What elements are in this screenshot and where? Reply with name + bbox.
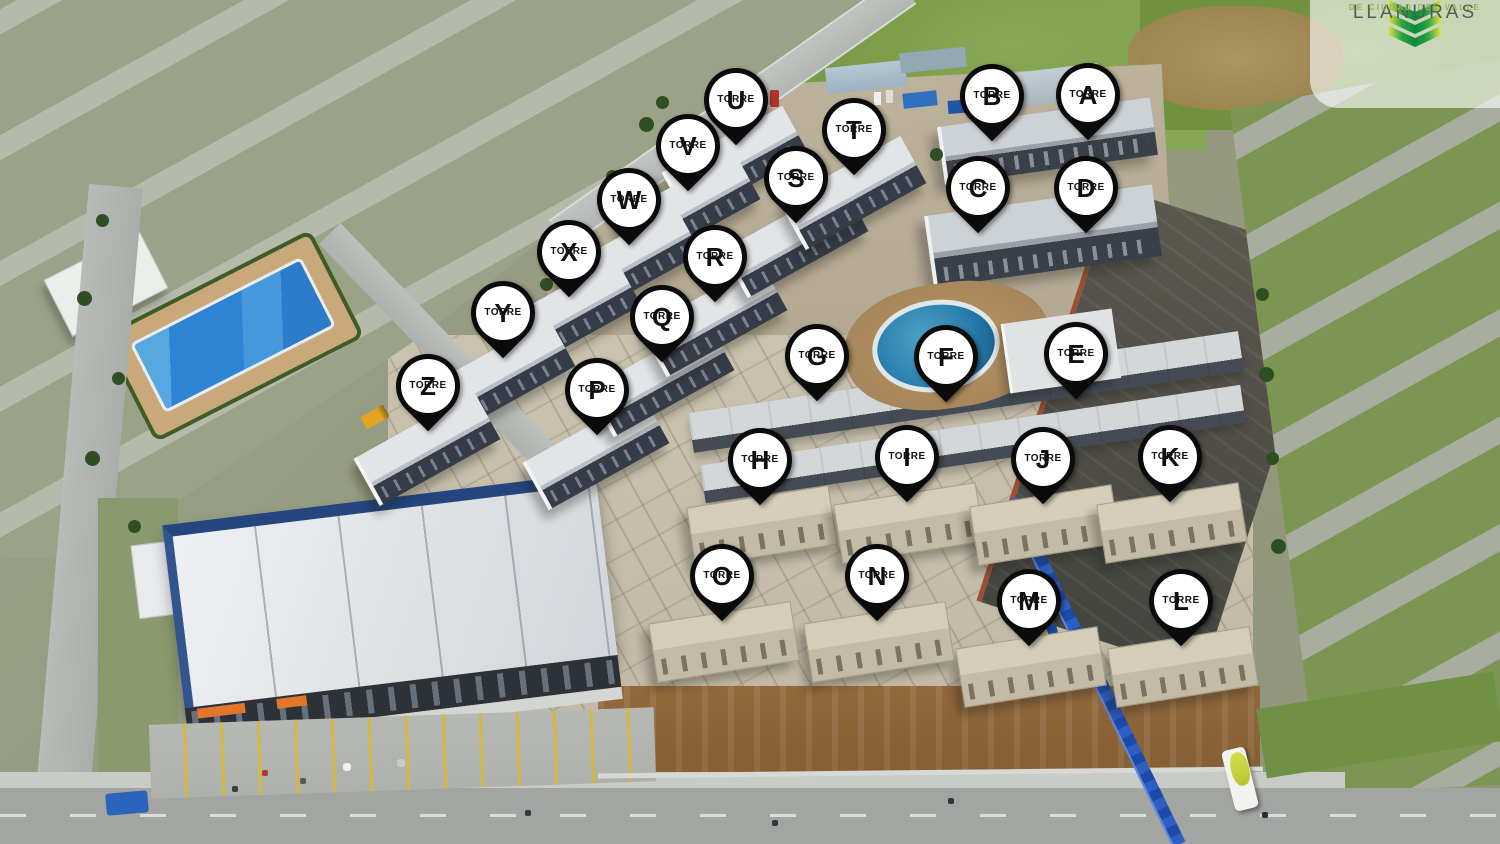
pin-face-content: TORRE K bbox=[1143, 430, 1197, 484]
pin-face-content: TORRE H bbox=[733, 433, 787, 487]
pin-letter: L bbox=[1173, 589, 1189, 614]
pin-face: TORRE N bbox=[839, 538, 915, 614]
pin-face: TORRE H bbox=[722, 422, 798, 498]
tower-pin-l[interactable]: TORRE L bbox=[1149, 569, 1213, 633]
tower-pin-v[interactable]: TORRE V bbox=[656, 114, 720, 178]
pin-letter: D bbox=[1077, 176, 1096, 201]
pin-shape: TORRE Y bbox=[458, 268, 549, 359]
pin-face: TORRE V bbox=[650, 108, 726, 184]
pin-letter: S bbox=[787, 166, 804, 191]
pin-face-content: TORRE S bbox=[769, 151, 823, 205]
pin-letter: I bbox=[903, 445, 910, 470]
pin-shape: TORRE P bbox=[552, 345, 643, 436]
pin-letter: U bbox=[727, 88, 746, 113]
pin-face-content: TORRE O bbox=[695, 549, 749, 603]
pin-face-content: TORRE V bbox=[661, 119, 715, 173]
tower-pin-y[interactable]: TORRE Y bbox=[471, 281, 535, 345]
pin-face: TORRE I bbox=[869, 419, 945, 495]
pin-letter: C bbox=[969, 176, 988, 201]
tower-pin-c[interactable]: TORRE C bbox=[946, 156, 1010, 220]
aerial-site-map: LLANURAS DE CIUDAD DEL VALLE TORRE A TOR… bbox=[0, 0, 1500, 844]
pin-letter: V bbox=[679, 134, 696, 159]
pin-face: TORRE Z bbox=[390, 348, 466, 424]
tower-pin-f[interactable]: TORRE F bbox=[914, 325, 978, 389]
pin-face-content: TORRE T bbox=[827, 103, 881, 157]
pin-face-content: TORRE P bbox=[570, 363, 624, 417]
pin-shape: TORRE C bbox=[933, 143, 1024, 234]
pin-face: TORRE F bbox=[908, 319, 984, 395]
pin-face: TORRE X bbox=[531, 214, 607, 290]
pin-face-content: TORRE C bbox=[951, 161, 1005, 215]
pin-face-content: TORRE E bbox=[1049, 327, 1103, 381]
pin-letter: P bbox=[588, 378, 605, 403]
tower-pin-n[interactable]: TORRE N bbox=[845, 544, 909, 608]
pin-face-content: TORRE F bbox=[919, 330, 973, 384]
pin-face-content: TORRE M bbox=[1002, 574, 1056, 628]
pin-face: TORRE B bbox=[954, 58, 1030, 134]
pin-face: TORRE P bbox=[559, 352, 635, 428]
tower-pin-k[interactable]: TORRE K bbox=[1138, 425, 1202, 489]
pin-shape: TORRE M bbox=[984, 556, 1075, 647]
pin-shape: TORRE N bbox=[832, 531, 923, 622]
pin-face: TORRE J bbox=[1005, 421, 1081, 497]
pin-face: TORRE Y bbox=[465, 275, 541, 351]
tower-pin-x[interactable]: TORRE X bbox=[537, 220, 601, 284]
pin-face-content: TORRE G bbox=[790, 329, 844, 383]
pin-shape: TORRE G bbox=[772, 311, 863, 402]
pin-letter: Y bbox=[494, 301, 511, 326]
pin-face: TORRE A bbox=[1050, 57, 1126, 133]
pin-letter: A bbox=[1079, 83, 1098, 108]
pin-face: TORRE Q bbox=[624, 279, 700, 355]
tower-pin-w[interactable]: TORRE W bbox=[597, 168, 661, 232]
pin-letter: J bbox=[1036, 447, 1050, 472]
pin-face-content: TORRE J bbox=[1016, 432, 1070, 486]
pin-letter: X bbox=[560, 240, 577, 265]
pin-face: TORRE T bbox=[816, 92, 892, 168]
pin-letter: T bbox=[846, 118, 862, 143]
pin-shape: TORRE X bbox=[524, 207, 615, 298]
tower-pin-b[interactable]: TORRE B bbox=[960, 64, 1024, 128]
pin-shape: TORRE Z bbox=[383, 341, 474, 432]
pin-face: TORRE R bbox=[677, 219, 753, 295]
pin-face-content: TORRE R bbox=[688, 230, 742, 284]
pin-face-content: TORRE Y bbox=[476, 286, 530, 340]
pin-face-content: TORRE W bbox=[602, 173, 656, 227]
pin-letter: R bbox=[706, 245, 725, 270]
tower-pin-p[interactable]: TORRE P bbox=[565, 358, 629, 422]
pin-letter: M bbox=[1018, 589, 1040, 614]
tower-pin-s[interactable]: TORRE S bbox=[764, 146, 828, 210]
tower-pin-h[interactable]: TORRE H bbox=[728, 428, 792, 492]
pin-face: TORRE K bbox=[1132, 419, 1208, 495]
tower-pin-m[interactable]: TORRE M bbox=[997, 569, 1061, 633]
pin-shape: TORRE B bbox=[947, 51, 1038, 142]
pin-letter: N bbox=[868, 564, 887, 589]
pin-letter: Z bbox=[420, 374, 436, 399]
tower-pin-r[interactable]: TORRE R bbox=[683, 225, 747, 289]
pin-letter: O bbox=[712, 564, 732, 589]
pin-letter: K bbox=[1161, 445, 1180, 470]
pin-shape: TORRE K bbox=[1125, 412, 1216, 503]
pin-face: TORRE O bbox=[684, 538, 760, 614]
pin-letter: Q bbox=[652, 305, 672, 330]
pin-shape: TORRE R bbox=[670, 212, 761, 303]
pin-face-content: TORRE N bbox=[850, 549, 904, 603]
pin-face-content: TORRE Z bbox=[401, 359, 455, 413]
pin-shape: TORRE E bbox=[1031, 309, 1122, 400]
pin-face: TORRE W bbox=[591, 162, 667, 238]
pin-face-content: TORRE I bbox=[880, 430, 934, 484]
pin-shape: TORRE H bbox=[715, 415, 806, 506]
tower-pin-d[interactable]: TORRE D bbox=[1054, 156, 1118, 220]
tower-pin-a[interactable]: TORRE A bbox=[1056, 63, 1120, 127]
pin-face: TORRE C bbox=[940, 150, 1016, 226]
pin-shape: TORRE A bbox=[1043, 50, 1134, 141]
tower-pin-q[interactable]: TORRE Q bbox=[630, 285, 694, 349]
tower-pin-t[interactable]: TORRE T bbox=[822, 98, 886, 162]
pin-letter: G bbox=[807, 344, 827, 369]
pin-letter: E bbox=[1067, 342, 1084, 367]
pin-face: TORRE L bbox=[1143, 563, 1219, 639]
pin-face-content: TORRE D bbox=[1059, 161, 1113, 215]
tower-pin-o[interactable]: TORRE O bbox=[690, 544, 754, 608]
tower-markers-layer: TORRE A TORRE B TORRE C bbox=[0, 0, 1500, 844]
pin-shape: TORRE O bbox=[677, 531, 768, 622]
pin-shape: TORRE F bbox=[901, 312, 992, 403]
pin-letter: F bbox=[938, 345, 954, 370]
tower-pin-e[interactable]: TORRE E bbox=[1044, 322, 1108, 386]
tower-pin-i[interactable]: TORRE I bbox=[875, 425, 939, 489]
pin-face-content: TORRE A bbox=[1061, 68, 1115, 122]
pin-face: TORRE G bbox=[779, 318, 855, 394]
pin-face-content: TORRE B bbox=[965, 69, 1019, 123]
tower-pin-j[interactable]: TORRE J bbox=[1011, 427, 1075, 491]
pin-letter: B bbox=[983, 84, 1002, 109]
pin-face-content: TORRE X bbox=[542, 225, 596, 279]
pin-shape: TORRE J bbox=[998, 414, 1089, 505]
pin-face-content: TORRE L bbox=[1154, 574, 1208, 628]
pin-face: TORRE D bbox=[1048, 150, 1124, 226]
pin-face-content: TORRE Q bbox=[635, 290, 689, 344]
pin-letter: W bbox=[617, 188, 642, 213]
pin-shape: TORRE I bbox=[862, 412, 953, 503]
pin-shape: TORRE T bbox=[809, 85, 900, 176]
tower-pin-z[interactable]: TORRE Z bbox=[396, 354, 460, 418]
pin-shape: TORRE D bbox=[1041, 143, 1132, 234]
pin-face: TORRE E bbox=[1038, 316, 1114, 392]
pin-letter: H bbox=[751, 448, 770, 473]
tower-pin-g[interactable]: TORRE G bbox=[785, 324, 849, 388]
pin-shape: TORRE L bbox=[1136, 556, 1227, 647]
pin-face: TORRE M bbox=[991, 563, 1067, 639]
